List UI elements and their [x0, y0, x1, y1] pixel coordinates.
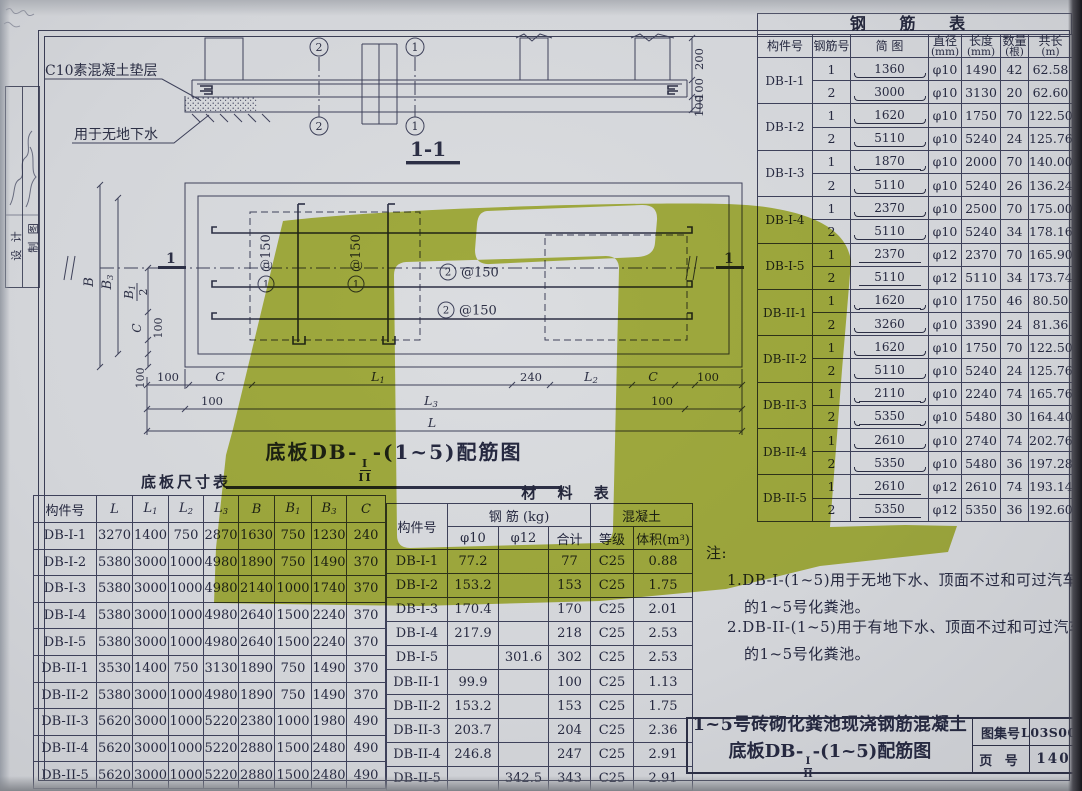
bar-no: 1: [813, 336, 851, 359]
material-row: DB-I-4217.9218C252.53: [387, 622, 693, 646]
dim-value: 2240: [312, 629, 347, 656]
bar-diameter: φ10: [929, 173, 962, 196]
bar2-label-b: 2 @150: [438, 302, 497, 319]
steel-d10-kg: 153.2: [448, 694, 499, 718]
member-id: DB-II-3: [758, 382, 813, 428]
concrete-volume: 2.91: [634, 742, 693, 766]
member-id: DB-II-2: [34, 682, 97, 709]
svg-text:1: 1: [166, 251, 176, 267]
bar-sketch: 2110: [851, 382, 929, 405]
design-label: 设 计: [8, 229, 24, 261]
steel-total-kg: 204: [549, 718, 591, 742]
group-steel: 钢 筋 (kg): [448, 504, 591, 527]
concrete-volume: 2.53: [634, 622, 693, 646]
bar-no: 1: [813, 197, 851, 220]
bar-length: 5240: [962, 359, 1001, 382]
concrete-grade: C25: [591, 646, 634, 670]
bar-total-length: 202.76: [1029, 429, 1073, 452]
bar-diameter: φ12: [929, 243, 962, 266]
bar-quantity: 36: [1001, 452, 1029, 475]
dim-value: 5620: [97, 709, 133, 736]
bedding-leader: [45, 79, 200, 100]
member-id: DB-II-4: [34, 735, 97, 762]
bar-length: 1750: [962, 104, 1001, 127]
steel-d12-kg: [499, 718, 549, 742]
bar-sketch-shape: 2370: [859, 202, 921, 217]
col-volume: 体积(m³): [634, 527, 693, 550]
dim-value: 1000: [275, 576, 312, 603]
dim-value: 3530: [97, 655, 133, 682]
dim-col-header: L3: [204, 496, 239, 523]
rebar-header-row: 构件号 钢筋号 简 图 直径(mm) 长度(mm) 数量(根) 共长(m): [758, 35, 1073, 58]
bar-length: 1490: [962, 58, 1001, 81]
dims-row: DB-II-35620300010005220238010001980490: [34, 709, 386, 736]
note-2-line2: 的1~5号化粪池。: [744, 643, 870, 664]
concrete-volume: 0.88: [634, 550, 693, 574]
member-id: DB-I-3: [34, 576, 97, 603]
dim-value: 2640: [239, 602, 275, 629]
bar-no: 1: [813, 243, 851, 266]
bar-length: 2610: [962, 475, 1001, 498]
title-block: 1~5号砖砌化粪池现浇钢筋混凝土 底板DB-III-(1~5)配筋图 图集号 L…: [686, 717, 1082, 774]
material-row: DB-II-2153.2153C251.75: [387, 694, 693, 718]
col-sketch: 简 图: [851, 35, 929, 58]
bar-total-length: 122.50: [1029, 104, 1073, 127]
member-id: DB-I-1: [758, 58, 813, 104]
steel-total-kg: 247: [549, 742, 591, 766]
bar-total-length: 125.76: [1029, 127, 1073, 150]
structural-drawing: 2 2 1 1 200 100: [42, 32, 764, 472]
bar-total-length: 122.50: [1029, 336, 1073, 359]
steel-total-kg: 302: [549, 646, 591, 670]
bar-total-length: 62.58: [1029, 58, 1073, 81]
dim-col-header: B1: [275, 496, 312, 523]
concrete-grade: C25: [591, 622, 634, 646]
dim-value: 3130: [204, 655, 239, 682]
bar-length: 5350: [962, 498, 1001, 521]
bar-sketch: 1870: [851, 150, 929, 173]
bar-total-length: 62.60: [1029, 81, 1073, 104]
dim-value: 1400: [133, 655, 169, 682]
rebar-row: DB-I-512370φ12237070165.90: [758, 243, 1073, 266]
svg-text:B1: B1: [122, 285, 137, 300]
steel-d12-kg: 342.5: [499, 766, 549, 790]
material-row: DB-II-3203.7204C252.36: [387, 718, 693, 742]
bar-length: 5480: [962, 452, 1001, 475]
svg-text:100: 100: [697, 370, 719, 384]
rebar-row: DB-II-412610φ10274074202.76: [758, 429, 1073, 452]
bar-sketch-shape: 1620: [859, 341, 921, 356]
dim-value: 1000: [169, 762, 204, 789]
material-row: DB-I-2153.2153C251.75: [387, 574, 693, 598]
bar-diameter: φ10: [929, 127, 962, 150]
dim-col-header: C: [347, 496, 386, 523]
col-d12: φ12: [499, 527, 549, 550]
concrete-grade: C25: [591, 598, 634, 622]
dim-value: 2640: [239, 629, 275, 656]
dim-value: 5380: [97, 602, 133, 629]
dim-value: 1490: [312, 682, 347, 709]
bar-sketch: 5110: [851, 173, 929, 196]
dim-value: 1890: [239, 682, 275, 709]
rebar-row: DB-II-211620φ10175070122.50: [758, 336, 1073, 359]
dims-row: DB-II-135301400750313018907501490370: [34, 655, 386, 682]
bar-length: 5240: [962, 127, 1001, 150]
bar-no: 1: [813, 104, 851, 127]
steel-d12-kg: [499, 742, 549, 766]
rebar-row: DB-II-512610φ12261074193.14: [758, 475, 1073, 498]
bar-no: 1: [813, 475, 851, 498]
steel-total-kg: 218: [549, 622, 591, 646]
dim-value: 1890: [239, 549, 275, 576]
member-id: DB-II-1: [34, 655, 97, 682]
bar-diameter: φ10: [929, 220, 962, 243]
concrete-volume: 2.01: [634, 598, 693, 622]
concrete-volume: 2.36: [634, 718, 693, 742]
bar-length: 5480: [962, 405, 1001, 428]
page-no-value: 140: [1029, 746, 1077, 772]
bar-diameter: φ10: [929, 81, 962, 104]
bar-sketch: 2610: [851, 475, 929, 498]
bar-length: 5110: [962, 266, 1001, 289]
drawing-title: 1~5号砖砌化粪池现浇钢筋混凝土 底板DB-III-(1~5)配筋图: [688, 719, 973, 772]
bar-no: 1: [813, 58, 851, 81]
dim-value: 5380: [97, 629, 133, 656]
svg-text:100: 100: [201, 394, 223, 408]
dim-value: 5620: [97, 735, 133, 762]
dim-value: 370: [347, 576, 386, 603]
member-id: DB-I-2: [387, 574, 448, 598]
bar-no: 2: [813, 81, 851, 104]
bar-length: 3130: [962, 81, 1001, 104]
dim-value: 1500: [275, 762, 312, 789]
dims-row: DB-II-45620300010005220288015002480490: [34, 735, 386, 762]
bar1-label-a: 1 @150: [258, 234, 274, 292]
dim-value: 3000: [133, 735, 169, 762]
bar-no: 1: [813, 382, 851, 405]
steel-total-kg: 77: [549, 550, 591, 574]
bar-diameter: φ12: [929, 498, 962, 521]
section-dims-right: 200 100 100: [689, 35, 706, 117]
svg-text:100: 100: [134, 368, 147, 389]
bar-diameter: φ10: [929, 452, 962, 475]
svg-text:C: C: [215, 369, 225, 384]
col-d10: φ10: [448, 527, 499, 550]
drawing-title-line1: 1~5号砖砌化粪池现浇钢筋混凝土: [693, 711, 968, 736]
material-row: DB-I-5301.6302C252.53: [387, 646, 693, 670]
dim-value: 1000: [169, 576, 204, 603]
bar-no: 2: [813, 127, 851, 150]
dim-value: 1400: [133, 523, 169, 550]
bar-sketch: 1620: [851, 104, 929, 127]
dim-value: 1980: [312, 709, 347, 736]
bar-length: 1750: [962, 289, 1001, 312]
bar-total-length: 80.50: [1029, 289, 1073, 312]
plan-title-prefix: 底板DB-: [265, 440, 358, 464]
rebar-row: DB-I-111360φ1014904262.58: [758, 58, 1073, 81]
member-id: DB-II-4: [758, 429, 813, 475]
member-id: DB-II-5: [34, 762, 97, 789]
dim-value: 1000: [169, 709, 204, 736]
member-id: DB-I-3: [758, 150, 813, 196]
bar-length: 5240: [962, 173, 1001, 196]
dim-value: 3000: [133, 549, 169, 576]
dim-value: 1500: [275, 735, 312, 762]
bar-quantity: 74: [1001, 475, 1029, 498]
bar-total-length: 173.74: [1029, 266, 1073, 289]
concrete-grade: C25: [591, 742, 634, 766]
concrete-grade: C25: [591, 574, 634, 598]
material-table-title: 材 料 表: [504, 482, 634, 503]
bar-diameter: φ10: [929, 289, 962, 312]
bar-quantity: 30: [1001, 405, 1029, 428]
member-id: DB-I-1: [34, 523, 97, 550]
section-label-underline: [406, 161, 460, 164]
bar-sketch-shape: 5110: [859, 179, 921, 194]
bar-sketch-shape: 5350: [859, 457, 921, 472]
concrete-grade: C25: [591, 670, 634, 694]
concrete-volume: 2.91: [634, 766, 693, 790]
bar-sketch-shape: 2370: [859, 248, 921, 263]
svg-text:240: 240: [520, 370, 542, 384]
bar-sketch-shape: 5110: [859, 364, 921, 379]
bar-no: 2: [813, 359, 851, 382]
dim-value: 5380: [97, 576, 133, 603]
member-id: DB-II-5: [387, 766, 448, 790]
bar-sketch-shape: 3000: [859, 86, 921, 101]
dim-value: 3000: [133, 682, 169, 709]
bar-quantity: 70: [1001, 150, 1029, 173]
bar-sketch: 2610: [851, 429, 929, 452]
steel-d10-kg: 77.2: [448, 550, 499, 574]
bar-total-length: 125.76: [1029, 359, 1073, 382]
bar-no: 2: [813, 220, 851, 243]
steel-total-kg: 100: [549, 670, 591, 694]
bar-total-length: 197.28: [1029, 452, 1073, 475]
svg-text:2: 2: [137, 289, 150, 296]
dim-value: 1000: [169, 735, 204, 762]
member-id: DB-II-3: [387, 718, 448, 742]
steel-d10-kg: 99.9: [448, 670, 499, 694]
svg-text:B: B: [82, 277, 97, 288]
bedding-stipple: [185, 96, 257, 112]
steel-d12-kg: [499, 550, 549, 574]
bar-quantity: 46: [1001, 289, 1029, 312]
col-barno: 钢筋号: [813, 35, 851, 58]
bar-length: 2000: [962, 150, 1001, 173]
plan-view: 1 @150 1 @150 2 @150 2 @150 1: [64, 182, 748, 435]
group-concrete: 混凝土: [591, 504, 693, 527]
svg-text:2: 2: [443, 306, 449, 317]
steel-d12-kg: [499, 694, 549, 718]
dim-value: 2140: [239, 576, 275, 603]
bar-diameter: φ12: [929, 475, 962, 498]
material-row: DB-II-5342.5343C252.91: [387, 766, 693, 790]
dim-value: 1230: [312, 523, 347, 550]
drawing-sheet: 设 计 制 图: [0, 0, 1082, 791]
bar-sketch: 1360: [851, 58, 929, 81]
steel-d12-kg: 301.6: [499, 646, 549, 670]
bar-total-length: 193.14: [1029, 475, 1073, 498]
svg-text:100: 100: [152, 318, 165, 339]
bar-sketch-shape: 5350: [859, 410, 921, 425]
bar-no: 2: [813, 266, 851, 289]
bar-total-length: 175.00: [1029, 197, 1073, 220]
bar-sketch-shape: 5110: [859, 225, 921, 240]
dim-value: 490: [347, 735, 386, 762]
plan-title-fraction: III: [358, 458, 372, 483]
plan-dims-bottom: 100 C L1 240 L2 C 100 100 L3 100 L: [144, 369, 745, 435]
bar-no: 2: [813, 173, 851, 196]
dim-value: 240: [347, 523, 386, 550]
bar-sketch: 5350: [851, 405, 929, 428]
concrete-volume: 1.75: [634, 574, 693, 598]
bar-sketch: 5350: [851, 452, 929, 475]
bar-no: 1: [813, 429, 851, 452]
dim-value: 490: [347, 762, 386, 789]
section-label: 1-1: [410, 137, 446, 161]
dim-value: 1000: [169, 549, 204, 576]
dim-value: 1740: [312, 576, 347, 603]
bar-quantity: 74: [1001, 429, 1029, 452]
dim-value: 5620: [97, 762, 133, 789]
plan-title-suffix: -(1~5)配筋图: [373, 440, 523, 464]
dim-B1-over-2: B1 2: [122, 283, 150, 301]
section-cut-right: 1: [686, 251, 744, 280]
dim-value: 4980: [204, 602, 239, 629]
svg-text:L3: L3: [423, 393, 438, 410]
wall-hatch-left: [205, 38, 243, 80]
bar-diameter: φ10: [929, 104, 962, 127]
dim-value: 750: [169, 655, 204, 682]
member-id: DB-II-2: [758, 336, 813, 382]
bar-total-length: 165.90: [1029, 243, 1073, 266]
bar-sketch-shape: 3260: [859, 318, 921, 333]
dim-value: 750: [275, 655, 312, 682]
bar-sketch: 3000: [851, 81, 929, 104]
plan-dims-left: B B3 B1 2 C 100 100: [82, 182, 165, 389]
svg-text:2: 2: [316, 120, 323, 133]
svg-text:100: 100: [651, 394, 673, 408]
material-row: DB-I-177.277C250.88: [387, 550, 693, 574]
bar-total-length: 164.40: [1029, 405, 1073, 428]
dim-value: 5220: [204, 762, 239, 789]
bar-quantity: 70: [1001, 243, 1029, 266]
material-row: DB-II-199.9100C251.13: [387, 670, 693, 694]
col-grade: 等级: [591, 527, 634, 550]
dim-value: 1000: [275, 709, 312, 736]
svg-text:@150: @150: [459, 304, 497, 319]
dim-value: 490: [347, 709, 386, 736]
bar-sketch: 5110: [851, 220, 929, 243]
dim-value: 5380: [97, 682, 133, 709]
bar-diameter: φ10: [929, 58, 962, 81]
col-len: 长度(mm): [962, 35, 1001, 58]
dim-value: 5380: [97, 549, 133, 576]
bar-sketch: 2370: [851, 243, 929, 266]
dim-value: 750: [275, 549, 312, 576]
member-id: DB-I-5: [387, 646, 448, 670]
member-id: DB-I-1: [387, 550, 448, 574]
bar-diameter: φ10: [929, 197, 962, 220]
bar-quantity: 24: [1001, 127, 1029, 150]
bar-sketch: 5350: [851, 498, 929, 521]
bar-diameter: φ10: [929, 336, 962, 359]
dims-row: DB-I-55380300010004980264015002240370: [34, 629, 386, 656]
dim-value: 370: [347, 629, 386, 656]
dim-col-header: B3: [312, 496, 347, 523]
bar-no: 1: [813, 289, 851, 312]
section-cut-left: 1: [64, 251, 186, 280]
col-total: 共长(m): [1029, 35, 1073, 58]
svg-text:1: 1: [412, 120, 419, 133]
material-row: DB-I-3170.4170C252.01: [387, 598, 693, 622]
steel-d10-kg: 217.9: [448, 622, 499, 646]
bar-quantity: 70: [1001, 197, 1029, 220]
svg-text:C: C: [648, 369, 658, 384]
dim-value: 5220: [204, 735, 239, 762]
col-member: 构件号: [758, 35, 813, 58]
bar-diameter: φ12: [929, 266, 962, 289]
bar-no: 2: [813, 405, 851, 428]
svg-text:@150: @150: [259, 234, 274, 272]
rebar-row: DB-II-312110φ10224074165.76: [758, 382, 1073, 405]
bar-quantity: 70: [1001, 336, 1029, 359]
bar-sketch: 2370: [851, 197, 929, 220]
svg-text:@150: @150: [349, 234, 364, 272]
svg-text:L2: L2: [583, 369, 598, 386]
dim-value: 1000: [169, 629, 204, 656]
dim-value: 750: [275, 523, 312, 550]
member-id: DB-II-4: [387, 742, 448, 766]
rebar-row: DB-I-311870φ10200070140.00: [758, 150, 1073, 173]
bar-quantity: 26: [1001, 173, 1029, 196]
dim-value: 3270: [97, 523, 133, 550]
bar-diameter: φ10: [929, 150, 962, 173]
draft-label: 制 图: [25, 221, 41, 253]
bar-quantity: 70: [1001, 104, 1029, 127]
drawing-title-line2: 底板DB-III-(1~5)配筋图: [729, 737, 932, 780]
svg-text:100: 100: [692, 95, 706, 117]
concrete-volume: 1.13: [634, 670, 693, 694]
steel-d12-kg: [499, 598, 549, 622]
svg-text:1: 1: [724, 251, 734, 267]
dim-value: 3000: [133, 602, 169, 629]
dim-value: 2880: [239, 735, 275, 762]
material-row: DB-II-4246.8247C252.91: [387, 742, 693, 766]
material-header-row1: 构件号 钢 筋 (kg) 混凝土: [387, 504, 693, 527]
bar-total-length: 178.16: [1029, 220, 1073, 243]
bar-length: 2740: [962, 429, 1001, 452]
dim-value: 3000: [133, 709, 169, 736]
col-member: 构件号: [387, 504, 448, 550]
margin-title-strip: 设 计 制 图: [5, 86, 40, 288]
steel-d10-kg: [448, 646, 499, 670]
steel-total-kg: 170: [549, 598, 591, 622]
plan-dashed-wall-left: [250, 212, 420, 340]
bar-sketch-shape: 1620: [859, 109, 921, 124]
concrete-volume: 1.75: [634, 694, 693, 718]
dim-value: 1490: [312, 549, 347, 576]
dim-value: 4980: [204, 576, 239, 603]
rebar-schedule-table: 钢 筋 表 构件号 钢筋号 简 图 直径(mm) 长度(mm) 数量(根) 共长…: [757, 13, 1072, 522]
dim-value: 1000: [169, 682, 204, 709]
bar-diameter: φ10: [929, 405, 962, 428]
col-qty: 数量(根): [1001, 35, 1029, 58]
member-id: DB-I-5: [758, 243, 813, 289]
dim-value: 4980: [204, 629, 239, 656]
steel-d10-kg: 246.8: [448, 742, 499, 766]
